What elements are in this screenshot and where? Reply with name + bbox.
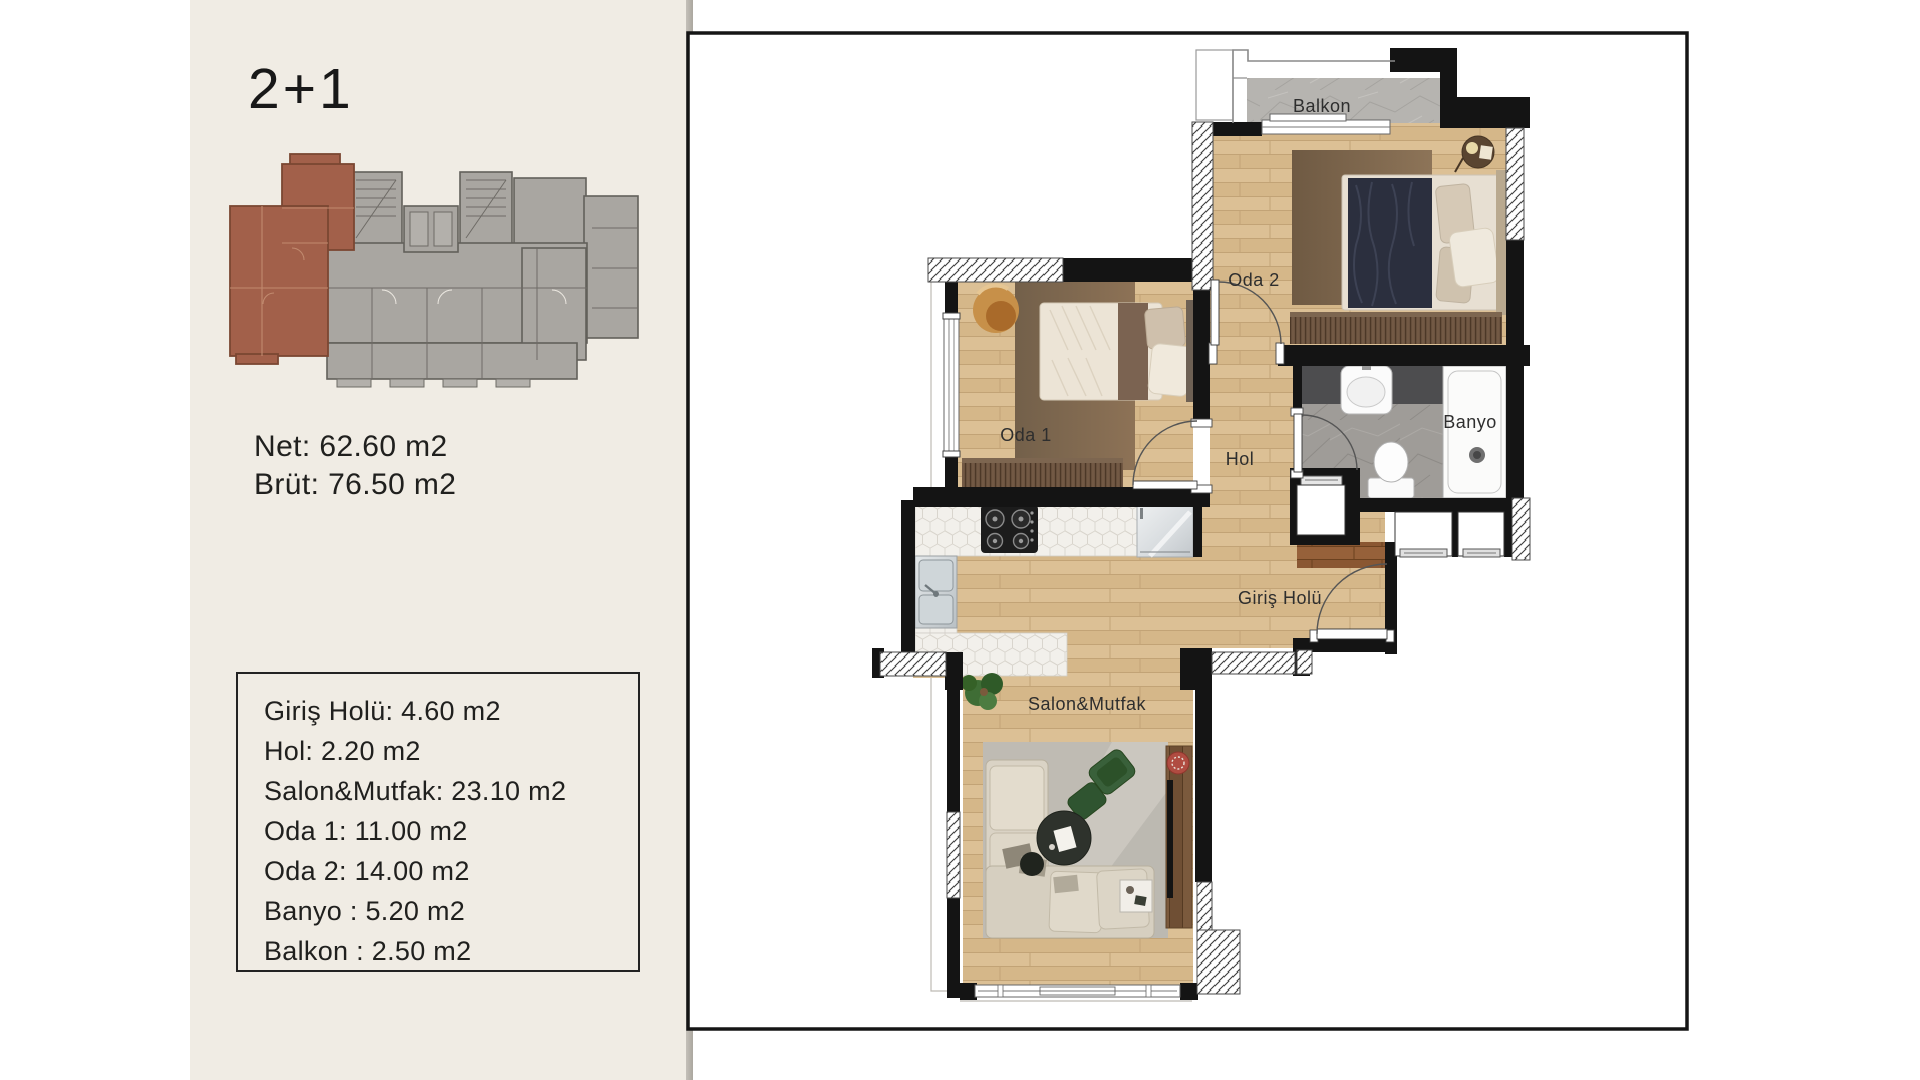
floor-plan: Balkon Oda 2 Oda 1 Hol Banyo Giriş Holü …	[0, 0, 1920, 1080]
page-root: 2+1	[0, 0, 1920, 1080]
room-label-banyo: Banyo	[1443, 412, 1497, 432]
room-label-balkon: Balkon	[1293, 96, 1351, 116]
room-label-oda1: Oda 1	[1000, 425, 1052, 445]
entry-mat	[1297, 542, 1385, 568]
salon-furniture	[983, 742, 1192, 938]
room-label-hol: Hol	[1226, 449, 1255, 469]
oda2-furniture	[1290, 136, 1508, 344]
tv	[1167, 780, 1173, 898]
room-label-oda2: Oda 2	[1228, 270, 1280, 290]
room-label-salon-mutfak: Salon&Mutfak	[1028, 694, 1147, 714]
room-label-giris-holu: Giriş Holü	[1238, 588, 1322, 608]
refrigerator	[1137, 505, 1193, 557]
